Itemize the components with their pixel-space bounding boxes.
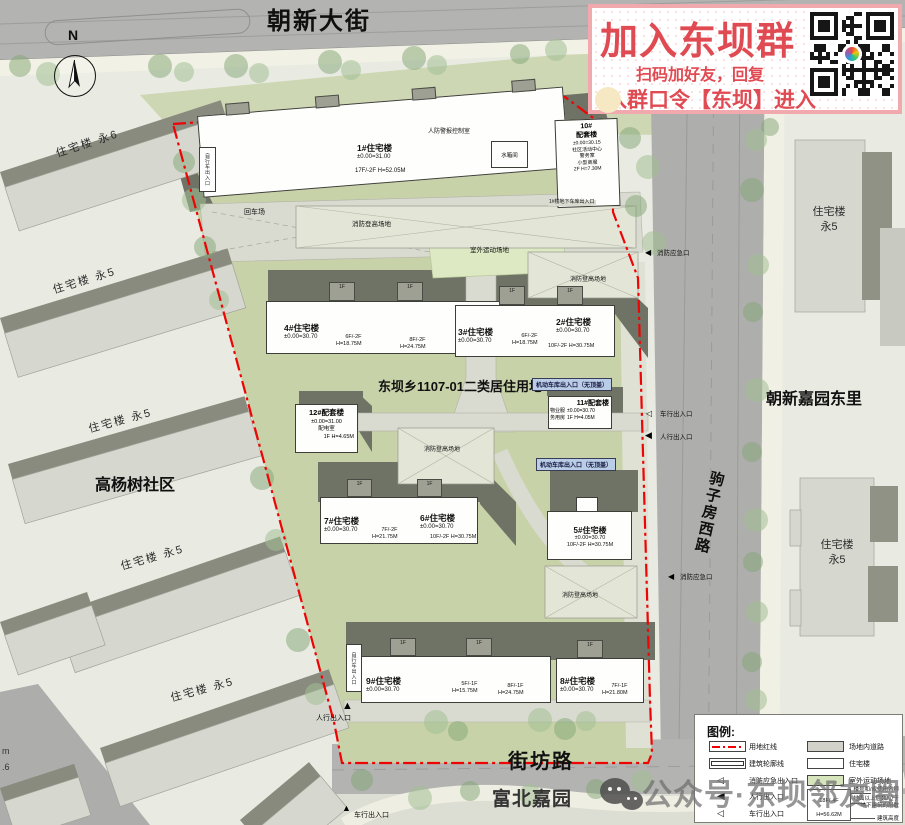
roof-stub [225,102,250,116]
fire-ladder-label-3: 消防登高场地 [424,447,460,454]
context-bldg-label-right-2: 住宅楼 永5 [808,538,866,569]
b4-spec-a: 6F/-2F H=18.75M [336,334,362,348]
legend-sample-box: 18F/-4F H=56.62M [807,789,851,821]
roof-stub-1f: 1F [466,638,492,656]
fire-exit-label-north: 消防应急口 [657,250,690,257]
pedestrian-entry-label-sw: 人行出入口 [316,715,351,723]
b1-name: 1#住宅楼 [357,144,392,154]
b7-name: 7#住宅楼 [324,517,359,527]
b5-label: 5#住宅楼 ±0.00=30.70 10F/-2F H=30.75M [553,526,627,548]
b3-name: 3#住宅楼 [458,328,493,338]
sports-field-label: 室外运动场地 [470,247,509,254]
b5-name: 5#住宅楼 [553,526,627,535]
b3-elev: ±0.00=30.70 [458,338,493,345]
spec-line: H=24.75M [400,344,426,351]
site-title: 东坝乡1107-01二类居住用地 [378,380,542,395]
fire-ladder-label-2: 消防登高场地 [570,277,606,284]
legend-item: 用地红线 [749,742,777,752]
fire-ladder-label-1: 消防登高场地 [352,221,391,228]
roof-stub [511,79,536,93]
spec-line: H=24.75M [498,690,524,697]
ad-line1: 扫码加好友，回复 [636,61,764,85]
b3-spec: 6F/-2F H=18.75M [512,333,538,347]
pedestrian-arrow-icon: ▲ [342,701,353,712]
context-bldg-line: 住宅楼 [808,538,866,553]
bike-entry-label: 自行车出入口 [204,153,211,186]
legend-item: 人行出入口 [749,792,784,802]
north-compass [54,55,96,97]
b6-label: 6#住宅楼 ±0.00=30.70 [420,514,455,531]
b8-spec: 7F/-1F H=21.80M [602,683,628,697]
fire-exit-arrow-icon: ◀ [645,249,651,257]
spec-line: H=18.75M [512,340,538,347]
b2-label: 2#住宅楼 ±0.00=30.70 [556,318,591,335]
vehicle-arrow-icon: ◁ [646,410,652,418]
b11-spec: 1F H=4.05M [567,415,595,422]
garage-entry-label-north: 机动车库出入口（无顶盖） [532,378,612,391]
legend-item: 场地内道路 [849,742,884,752]
legend-item: 建筑轮廓线 [749,759,784,769]
legend-ped-arrow-icon: ◀ [717,791,725,802]
roof-stub [576,497,598,512]
b12-spec: 1F H=4.65M [296,434,357,442]
legend-swatch-road [807,741,844,752]
legend-item: 车行出入口 [749,809,784,819]
b11-name: 11#配套楼 [549,397,611,408]
legend-panel: 图例: ◁ ◀ ◁ 用地红线 建筑轮廓线 消防应急出入口 人行出入口 车行出入口… [694,714,903,823]
b6-name: 6#住宅楼 [420,514,455,524]
spec-line: H=15.75M [452,688,478,695]
ad-line2: 入群口令【东坝】进入 [606,84,816,114]
north-label: N [68,27,78,43]
legend-annotation: 建筑高度 [877,814,899,822]
water-tank-label: 水箱间 [501,151,518,159]
fire-exit-arrow-icon: ◀ [668,573,674,581]
legend-veh-arrow-icon: ◁ [717,808,724,819]
roof-stub [412,87,437,101]
b2-spec: 10F/-2F H=30.75M [548,343,594,349]
b6-elev: ±0.00=30.70 [420,524,455,531]
b6-spec: 10F/-2F H=30.75M [430,534,476,540]
b5-spec: 10F/-2F H=30.75M [553,542,627,548]
b7-label: 7#住宅楼 ±0.00=30.70 [324,517,359,534]
b4-label: 4#住宅楼 ±0.00=30.70 [284,324,319,341]
turnaround-label: 回车场 [244,209,265,217]
legend-leader [851,818,875,819]
legend-sample-height: H=56.62M [808,812,850,818]
legend-sample-floors: 18F/-4F [808,798,850,804]
spec-line: 6F/-2F [336,334,362,341]
spec-line: 5F/-1F [452,681,478,688]
context-bldg-line: 永5 [800,220,858,235]
spec-line: 7F/-1F [602,683,628,690]
b8-name: 8#住宅楼 [560,677,595,687]
b1-elev: ±0.00=31.00 [357,154,392,161]
roof-stub-1f: 1F [390,638,416,656]
legend-title: 图例: [707,723,735,740]
b9-name: 9#住宅楼 [366,677,401,687]
b12-name: 12#配套楼 [296,408,357,419]
b9-elev: ±0.00=30.70 [366,687,401,694]
legend-fire-arrow-icon: ◁ [717,775,724,786]
b1-spec: 17F/-2F H=52.05M [355,168,406,175]
legend-swatch-redline [709,741,746,752]
clipped-text-fragment: .6 [2,762,10,772]
ad-title: 加入东坝群 [600,10,795,65]
road-name-top: 朝新大街 [267,8,371,36]
roof-stub-1f: 1F [347,479,372,497]
roof-stub-1f: 1F [557,286,583,305]
clipped-text-fragment: m [2,746,10,756]
bike-entry-box-south: 自行车出入口 [346,644,362,692]
district-bottom: 富北嘉园 [492,789,572,811]
civil-defense-label: 人防警报控制室 [428,129,470,136]
b2-elev: ±0.00=30.70 [556,328,591,335]
road-name-bottom: 街坊路 [508,751,574,774]
wechat-group-ad: 加入东坝群 扫码加好友，回复 入群口令【东坝】进入 [588,4,902,114]
b4-spec-b: 8F/-2F H=24.75M [400,337,426,351]
b12-use: 配电室 [296,426,357,434]
b1-garage-entry-label: 1#楼地下车库出入口 [548,200,596,206]
site-plan-page: 自行车出入口 水箱间 10# 配套楼 ±0.00=30.15 社区活动中心 警务… [0,0,905,825]
district-left: 高杨树社区 [95,477,175,495]
b9-label: 9#住宅楼 ±0.00=30.70 [366,677,401,694]
legend-item: 消防应急出入口 [749,776,798,786]
b2-name: 2#住宅楼 [556,318,591,328]
legend-item: 住宅楼 [849,759,870,769]
b11-use1: 物业服 [550,408,565,415]
legend-annotation: 楼号和/或使用名称 [853,785,899,793]
district-right: 朝新嘉园东里 [766,391,862,409]
roof-stub [315,95,340,109]
spec-line: 8F/-2F [400,337,426,344]
ad-decoration-circle [595,87,621,113]
bike-entry-box-north: 自行车出入口 [199,147,216,192]
context-bldg-line: 永5 [808,553,866,568]
building-12: 12#配套楼 ±0.00=31.00 配电室 1F H=4.65M [295,404,358,453]
roof-stub-1f: 1F [329,282,355,301]
b8-label: 8#住宅楼 ±0.00=30.70 [560,677,595,694]
building-11: 11#配套楼 物业服 务用房 ±0.00=30.70 1F H=4.05M [548,396,612,429]
vehicle-entry-label-south: 车行出入口 [354,812,389,820]
b10-spec: 2F H=7.30M [557,165,618,174]
b7-elev: ±0.00=30.70 [324,527,359,534]
b3-label: 3#住宅楼 ±0.00=30.70 [458,328,493,345]
north-needle [75,60,81,87]
legend-swatch-sports [807,775,844,786]
b11-use2: 务用房 [550,415,565,422]
vehicle-entry-label-east: 车行出入口 [660,411,693,418]
qr-logo-icon [842,44,862,64]
spec-line: H=21.80M [602,690,628,697]
roof-stub-1f: 1F [417,479,442,497]
legend-swatch-outline [709,758,746,769]
context-bldg-label-right-1: 住宅楼 永5 [800,205,858,236]
bike-entry-label: 自行车出入口 [351,652,358,685]
b11-elev: ±0.00=30.70 [567,408,595,415]
b1-label: 1#住宅楼 ±0.00=31.00 [357,144,392,161]
spec-line: 7F/-2F [372,527,398,534]
spec-line: H=18.75M [336,341,362,348]
garage-entry-label-south: 机动车库出入口（无顶盖） [536,458,616,471]
b9-spec-a: 5F/-1F H=15.75M [452,681,478,695]
b4-elev: ±0.00=30.70 [284,334,319,341]
roof-stub-1f: 1F [577,640,603,658]
legend-annotation: 地下建筑的层数 [860,801,899,809]
b9-spec-b: 8F/-1F H=24.75M [498,683,524,697]
spec-line: 8F/-1F [498,683,524,690]
context-bldg-line: 住宅楼 [800,205,858,220]
water-tank-room: 水箱间 [491,141,528,168]
fire-ladder-label-4: 消防登高场地 [562,593,598,600]
building-10: 10# 配套楼 ±0.00=30.15 社区活动中心 警务室 小型商服 2F H… [554,118,620,208]
roof-stub-1f: 1F [499,286,525,305]
b7-spec: 7F/-2F H=21.75M [372,527,398,541]
vehicle-arrow-icon: ▲ [342,804,351,813]
legend-swatch-residential [807,758,844,769]
pedestrian-arrow-icon: ◀ [645,431,652,440]
b8-elev: ±0.00=30.70 [560,687,595,694]
fire-exit-label-south: 消防应急口 [680,574,713,581]
spec-line: 6F/-2F [512,333,538,340]
spec-line: H=21.75M [372,534,398,541]
pedestrian-entry-label-east: 人行出入口 [660,434,693,441]
roof-stub-1f: 1F [397,282,423,301]
b4-name: 4#住宅楼 [284,324,319,334]
